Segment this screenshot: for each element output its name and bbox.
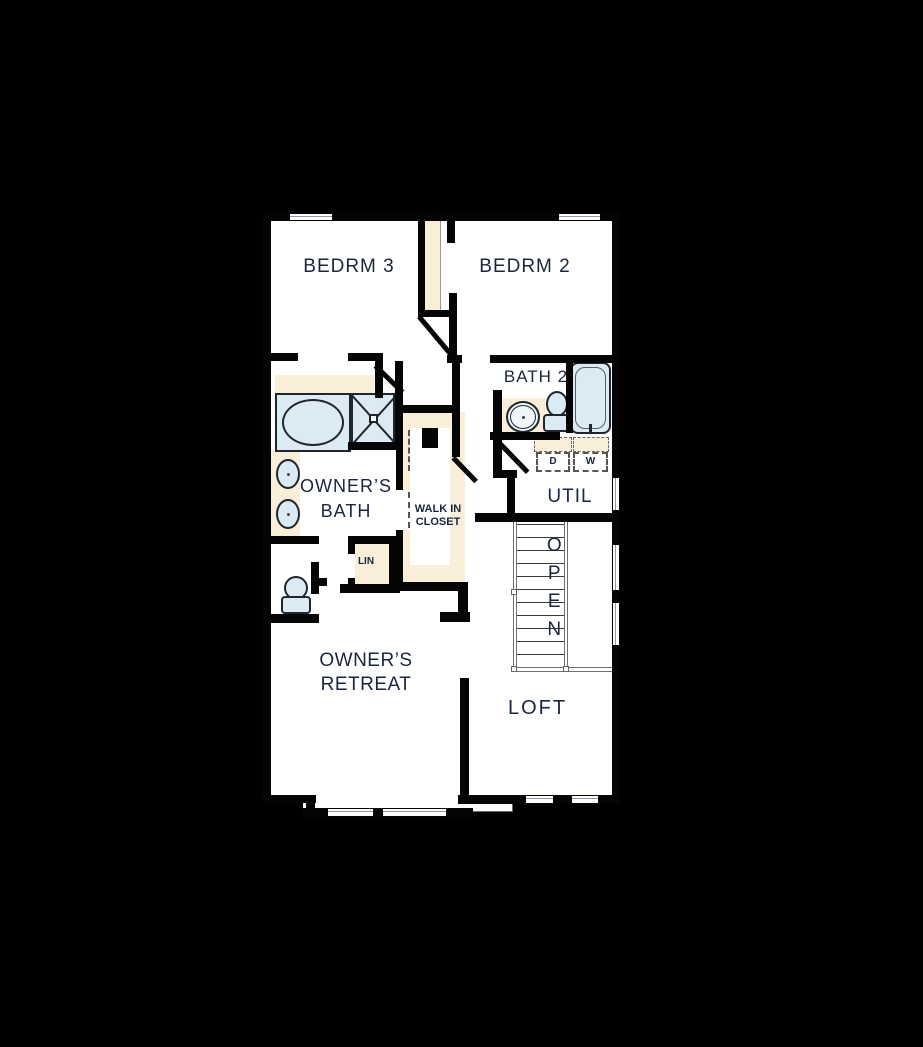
bay-step <box>473 804 513 812</box>
toilet-tank <box>281 596 311 614</box>
dryer-label: D <box>538 456 568 469</box>
walkin-floor <box>410 428 450 565</box>
window <box>383 809 446 816</box>
wall <box>319 578 327 586</box>
room-label-bedrm2: BEDRM 2 <box>460 255 590 279</box>
wall <box>395 361 403 450</box>
wall <box>271 536 319 544</box>
util-shelf-right <box>573 437 609 452</box>
room-label-linen: LIN <box>353 556 379 569</box>
walkin-door-dashed <box>408 430 410 471</box>
washer-box: W <box>573 452 608 472</box>
wall <box>348 536 403 544</box>
washer-label: W <box>575 456 606 469</box>
room-label-owners-retreat: OWNER’S RETREAT <box>277 649 455 697</box>
shower <box>351 393 395 444</box>
room-label-util: UTIL <box>540 485 600 509</box>
wall <box>311 562 319 594</box>
wall <box>340 584 400 593</box>
stair-rail <box>513 522 514 672</box>
wall <box>263 353 298 361</box>
room-label-owners-bath: OWNER’S BATH <box>291 474 401 524</box>
window <box>613 478 619 510</box>
room-label-bath2: BATH 2 <box>500 366 572 387</box>
wall <box>490 432 560 440</box>
window <box>572 796 598 803</box>
bedroom-closet-shelf <box>424 221 441 311</box>
window <box>290 214 332 220</box>
bathtub <box>570 362 611 434</box>
wall <box>447 221 455 243</box>
wall <box>396 405 458 413</box>
wall <box>490 355 612 363</box>
wall <box>263 213 271 803</box>
room-label-loft: LOFT <box>508 696 564 721</box>
room-label-bedrm3: BEDRM 3 <box>284 255 414 279</box>
floor-plan: D W <box>0 0 923 1047</box>
bathtub-faucet <box>589 424 592 433</box>
chase <box>422 428 438 448</box>
stair-rail <box>516 522 517 672</box>
room-label-walkin-closet: WALK IN CLOSET <box>406 503 470 529</box>
window <box>613 545 619 590</box>
window <box>526 796 553 803</box>
dryer-box: D <box>536 452 570 472</box>
wall <box>458 588 468 614</box>
shower-drain <box>369 414 378 423</box>
stair-rail <box>567 522 568 672</box>
window <box>613 603 619 645</box>
wall <box>475 513 620 522</box>
wall <box>507 476 515 516</box>
stairs-open-label: OPEN <box>542 533 566 648</box>
sink-drain <box>287 513 290 516</box>
wall <box>263 614 319 623</box>
bathtub-rim <box>575 367 606 429</box>
sink-drain <box>287 473 290 476</box>
rail-post <box>511 589 517 595</box>
sink-drain <box>522 416 525 419</box>
tub-deck <box>275 375 374 394</box>
window <box>559 214 600 220</box>
rail-post <box>511 666 517 672</box>
window <box>328 809 373 816</box>
rail-post <box>563 666 569 672</box>
wall <box>348 544 355 554</box>
wall <box>389 544 397 588</box>
wall <box>460 678 469 800</box>
wall <box>418 310 450 317</box>
garden-tub-basin <box>282 399 344 446</box>
wall <box>418 221 425 317</box>
wall <box>440 612 470 622</box>
